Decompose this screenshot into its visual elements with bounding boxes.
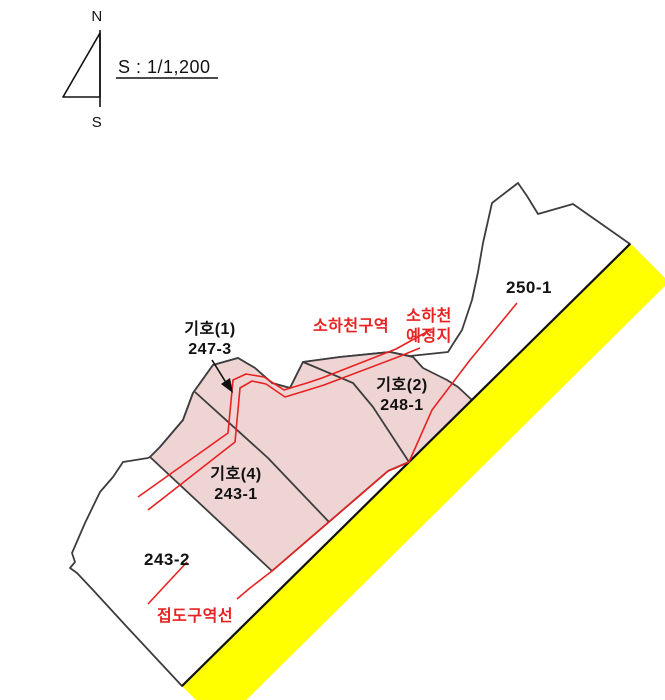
label-parcel-250-1: 250-1 xyxy=(506,278,552,297)
label-road-zone-line-1: 접도구역선 xyxy=(157,606,233,625)
compass-north-label: N xyxy=(91,8,102,25)
cadastral-map: 기호(1)247-3기호(2)248-1기호(4)243-1243-2250-1… xyxy=(0,0,665,700)
label-stream-zone: 소하천구역 xyxy=(313,317,389,335)
label-parcel-247-3-line-2: 247-3 xyxy=(188,341,231,358)
label-parcel-243-2: 243-2 xyxy=(144,550,190,569)
label-parcel-243-1-line-2: 243-1 xyxy=(214,486,257,503)
scale-text-line-1: S : 1/1,200 xyxy=(118,57,211,77)
label-road-zone: 접도구역선 xyxy=(157,606,233,625)
label-stream-zone-line-1: 소하천구역 xyxy=(313,317,389,335)
label-parcel-247-3: 기호(1)247-3 xyxy=(184,320,236,358)
label-parcel-243-1-line-1: 기호(4) xyxy=(210,465,262,483)
label-stream-planned-line-2: 예정지 xyxy=(406,327,452,345)
label-parcel-250-1-line-1: 250-1 xyxy=(506,278,552,297)
map-canvas: 기호(1)247-3기호(2)248-1기호(4)243-1243-2250-1… xyxy=(0,0,665,700)
label-parcel-248-1-line-1: 기호(2) xyxy=(376,376,428,394)
label-stream-planned: 소하천예정지 xyxy=(406,307,452,345)
scale-text: S : 1/1,200 xyxy=(118,57,211,77)
label-parcel-248-1-line-2: 248-1 xyxy=(380,397,423,414)
compass-needle xyxy=(63,33,100,97)
compass-north-label-line-1: N xyxy=(91,8,102,25)
compass-south-label-line-1: S xyxy=(92,114,103,131)
label-parcel-243-2-line-1: 243-2 xyxy=(144,550,190,569)
label-stream-planned-line-1: 소하천 xyxy=(406,307,452,325)
label-parcel-247-3-line-1: 기호(1) xyxy=(184,320,236,338)
compass-south-label: S xyxy=(92,114,103,131)
